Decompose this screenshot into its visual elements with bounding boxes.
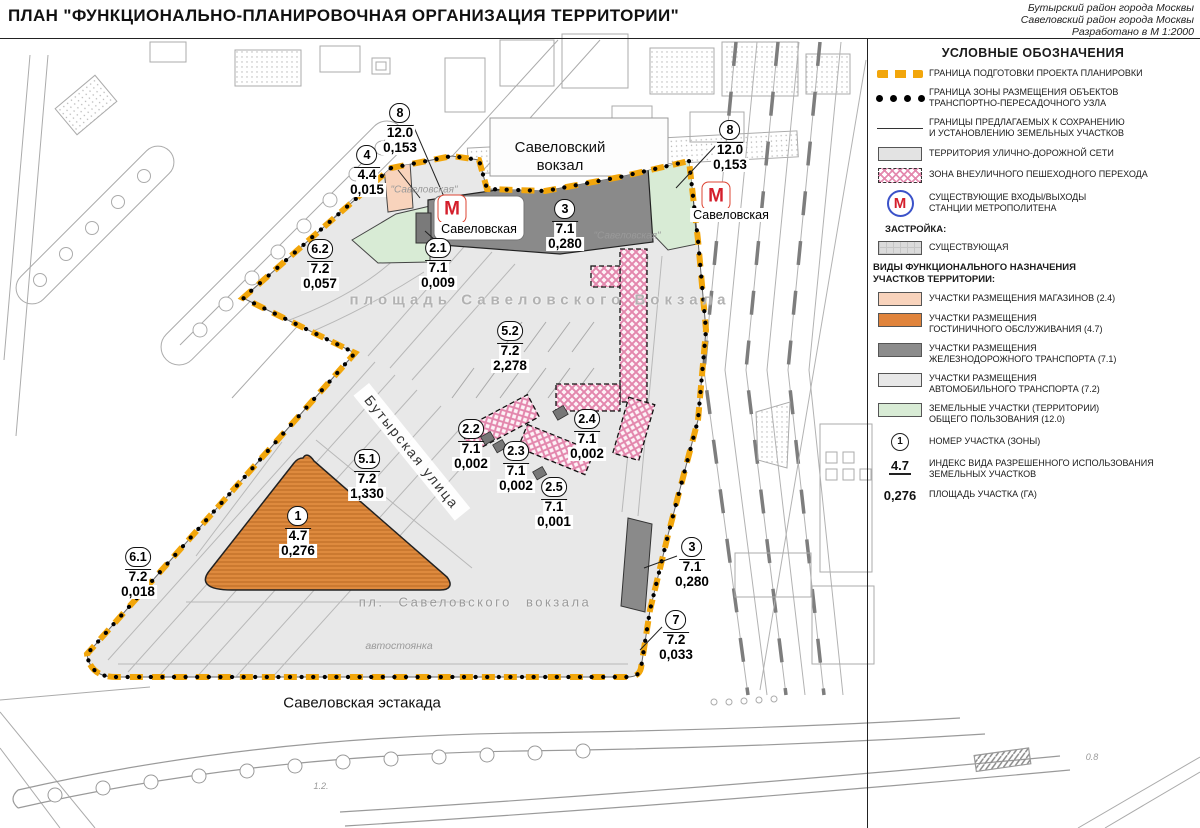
zone-use-index: 7.1 bbox=[543, 500, 566, 515]
zone-marker: 812.00,153 bbox=[381, 103, 419, 155]
zone-marker: 2.17.10,009 bbox=[419, 238, 457, 290]
area-symbol: 0,276 bbox=[884, 488, 917, 503]
zone-use-index: 7.1 bbox=[576, 432, 599, 447]
zone-use-index: 7.2 bbox=[309, 262, 332, 277]
zone-area: 0,018 bbox=[119, 585, 157, 600]
map-label: Савеловская эстакада bbox=[283, 695, 441, 712]
zone-area: 0,002 bbox=[568, 447, 606, 462]
hotel-swatch bbox=[878, 313, 922, 327]
zone-number: 5.2 bbox=[497, 321, 522, 341]
legend-item-existing: СУЩЕСТВУЮЩАЯ bbox=[871, 241, 1195, 255]
zone-use-index: 7.2 bbox=[127, 570, 150, 585]
zone-number: 3 bbox=[554, 199, 575, 219]
zone-marker: 5.27.22,278 bbox=[491, 321, 529, 373]
legend-divider bbox=[867, 38, 868, 828]
zone-marker: 812.00,153 bbox=[711, 120, 749, 172]
zone-area: 1,330 bbox=[348, 487, 386, 502]
legend-item-metro: М СУЩЕСТВУЮЩИЕ ВХОДЫ/ВЫХОДЫ СТАНЦИИ МЕТР… bbox=[871, 190, 1195, 217]
legend-item-zone-number: 1 НОМЕР УЧАСТКА (ЗОНЫ) bbox=[871, 433, 1195, 451]
district-note: Бутырский район города Москвы Савеловски… bbox=[1021, 2, 1194, 38]
legend-item-street-network: ТЕРРИТОРИЯ УЛИЧНО-ДОРОЖНОЙ СЕТИ bbox=[871, 147, 1195, 161]
legend-item-area: 0,276 ПЛОЩАДЬ УЧАСТКА (ГА) bbox=[871, 488, 1195, 503]
zone-number-symbol: 1 bbox=[891, 433, 909, 451]
zone-number: 2.1 bbox=[425, 238, 450, 258]
public-swatch bbox=[878, 403, 922, 417]
zone-use-index: 7.2 bbox=[665, 633, 688, 648]
map-label: автостоянка bbox=[365, 640, 432, 652]
metro-icon: М bbox=[887, 190, 914, 217]
map-label: площадь Савеловского Вокзала bbox=[350, 292, 731, 309]
zone-area: 0,057 bbox=[301, 277, 339, 292]
pedestrian-swatch bbox=[878, 168, 922, 183]
zone-area: 0,002 bbox=[497, 479, 535, 494]
zone-marker: 44.40,015 bbox=[348, 145, 386, 197]
zone-area: 0,015 bbox=[348, 183, 386, 198]
zone-number: 6.1 bbox=[125, 547, 150, 567]
legend-item-shops: УЧАСТКИ РАЗМЕЩЕНИЯ МАГАЗИНОВ (2.4) bbox=[871, 292, 1195, 306]
zone-number: 1 bbox=[287, 506, 308, 526]
legend-item-hotel: УЧАСТКИ РАЗМЕЩЕНИЯ ГОСТИНИЧНОГО ОБСЛУЖИВ… bbox=[871, 313, 1195, 336]
legend-item-parcel-boundaries: ГРАНИЦЫ ПРЕДЛАГАЕМЫХ К СОХРАНЕНИЮ И УСТА… bbox=[871, 117, 1195, 140]
use-index-symbol: 4.7 bbox=[889, 458, 911, 475]
zone-area: 0,002 bbox=[452, 457, 490, 472]
zone-marker: 37.10,280 bbox=[546, 199, 584, 251]
zone-area: 0,153 bbox=[711, 158, 749, 173]
shops-swatch bbox=[878, 292, 922, 306]
zone-marker: 14.70,276 bbox=[279, 506, 317, 558]
metro-icon: М bbox=[702, 182, 731, 211]
legend-item-use-index: 4.7 ИНДЕКС ВИДА РАЗРЕШЕННОГО ИСПОЛЬЗОВАН… bbox=[871, 458, 1195, 481]
legend-item-public: ЗЕМЕЛЬНЫЕ УЧАСТКИ (ТЕРРИТОРИИ) ОБЩЕГО ПО… bbox=[871, 403, 1195, 426]
metro-icon: М bbox=[438, 195, 467, 224]
rail-swatch bbox=[878, 343, 922, 357]
zone-number: 4 bbox=[356, 145, 377, 165]
orange-dash-swatch bbox=[877, 70, 923, 78]
metro-station-label: Савеловская bbox=[690, 208, 772, 222]
zone-area: 0,280 bbox=[673, 575, 711, 590]
zone-use-index: 7.1 bbox=[554, 222, 577, 237]
legend-item-pedestrian-zone: ЗОНА ВНЕУЛИЧНОГО ПЕШЕХОДНОГО ПЕРЕХОДА bbox=[871, 168, 1195, 183]
black-dots-swatch bbox=[876, 95, 925, 102]
zone-use-index: 7.2 bbox=[356, 472, 379, 487]
map-label: пл. Савеловского вокзала bbox=[359, 595, 592, 610]
zone-use-index: 7.1 bbox=[505, 464, 528, 479]
zone-marker: 6.27.20,057 bbox=[301, 239, 339, 291]
zone-marker: 6.17.20,018 bbox=[119, 547, 157, 599]
zone-number: 6.2 bbox=[307, 239, 332, 259]
zone-marker: 77.20,033 bbox=[657, 610, 695, 662]
zone-number: 5.1 bbox=[354, 449, 379, 469]
existing-swatch bbox=[878, 241, 922, 255]
metro-station-label: Савеловская bbox=[438, 222, 520, 236]
zone-use-index: 7.2 bbox=[499, 344, 522, 359]
zone-area: 0,009 bbox=[419, 276, 457, 291]
zone-marker: 2.27.10,002 bbox=[452, 419, 490, 471]
zone-area: 0,276 bbox=[279, 544, 317, 559]
zone-area: 2,278 bbox=[491, 359, 529, 374]
auto-swatch bbox=[878, 373, 922, 387]
legend-item-auto: УЧАСТКИ РАЗМЕЩЕНИЯ АВТОМОБИЛЬНОГО ТРАНСП… bbox=[871, 373, 1195, 396]
legend-section-functional: ВИДЫ ФУНКЦИОНАЛЬНОГО НАЗНАЧЕНИЯ УЧАСТКОВ… bbox=[873, 262, 1195, 286]
zone-use-index: 7.1 bbox=[460, 442, 483, 457]
legend-title: УСЛОВНЫЕ ОБОЗНАЧЕНИЯ bbox=[871, 46, 1195, 60]
zone-marker: 2.47.10,002 bbox=[568, 409, 606, 461]
zone-area: 0,001 bbox=[535, 515, 573, 530]
legend-section-built: ЗАСТРОЙКА: bbox=[885, 224, 1195, 235]
zone-number: 2.4 bbox=[574, 409, 599, 429]
zone-use-index: 12.0 bbox=[715, 143, 745, 158]
zone-number: 3 bbox=[681, 537, 702, 557]
map-label: 0.8 bbox=[1086, 752, 1099, 762]
zone-use-index: 7.1 bbox=[681, 560, 704, 575]
zone-use-index: 4.4 bbox=[356, 168, 379, 183]
zone-area: 0,033 bbox=[657, 648, 695, 663]
street-network-swatch bbox=[878, 147, 922, 161]
legend-item-rail: УЧАСТКИ РАЗМЕЩЕНИЯ ЖЕЛЕЗНОДОРОЖНОГО ТРАН… bbox=[871, 343, 1195, 366]
zone-area: 0,153 bbox=[381, 141, 419, 156]
zone-number: 2.2 bbox=[458, 419, 483, 439]
zone-marker: 37.10,280 bbox=[673, 537, 711, 589]
legend-panel: УСЛОВНЫЕ ОБОЗНАЧЕНИЯ ГРАНИЦА ПОДГОТОВКИ … bbox=[869, 38, 1199, 510]
legend-item-project-boundary: ГРАНИЦА ПОДГОТОВКИ ПРОЕКТА ПЛАНИРОВКИ bbox=[871, 68, 1195, 80]
map-label: "Савеловская" bbox=[593, 231, 660, 242]
zone-number: 2.3 bbox=[503, 441, 528, 461]
zone-marker: 5.17.21,330 bbox=[348, 449, 386, 501]
zone-number: 8 bbox=[719, 120, 740, 140]
map-label: Савеловский вокзал bbox=[515, 139, 606, 175]
page-title: ПЛАН "ФУНКЦИОНАЛЬНО-ПЛАНИРОВОЧНАЯ ОРГАНИ… bbox=[8, 6, 679, 26]
zone-area: 0,280 bbox=[546, 237, 584, 252]
line-swatch bbox=[877, 128, 923, 129]
zone-use-index: 4.7 bbox=[287, 529, 310, 544]
zone-marker: 2.37.10,002 bbox=[497, 441, 535, 493]
zone-use-index: 7.1 bbox=[427, 261, 450, 276]
zone-number: 7 bbox=[665, 610, 686, 630]
zone-number: 8 bbox=[389, 103, 410, 123]
zone-marker: 2.57.10,001 bbox=[535, 477, 573, 529]
zone-use-index: 12.0 bbox=[385, 126, 415, 141]
plan-page: 812.00,15344.40,015812.00,1536.27.20,057… bbox=[0, 0, 1200, 828]
legend-item-hub-boundary: ГРАНИЦА ЗОНЫ РАЗМЕЩЕНИЯ ОБЪЕКТОВ ТРАНСПО… bbox=[871, 87, 1195, 110]
zone-number: 2.5 bbox=[541, 477, 566, 497]
map-label: 1.2. bbox=[313, 781, 328, 791]
